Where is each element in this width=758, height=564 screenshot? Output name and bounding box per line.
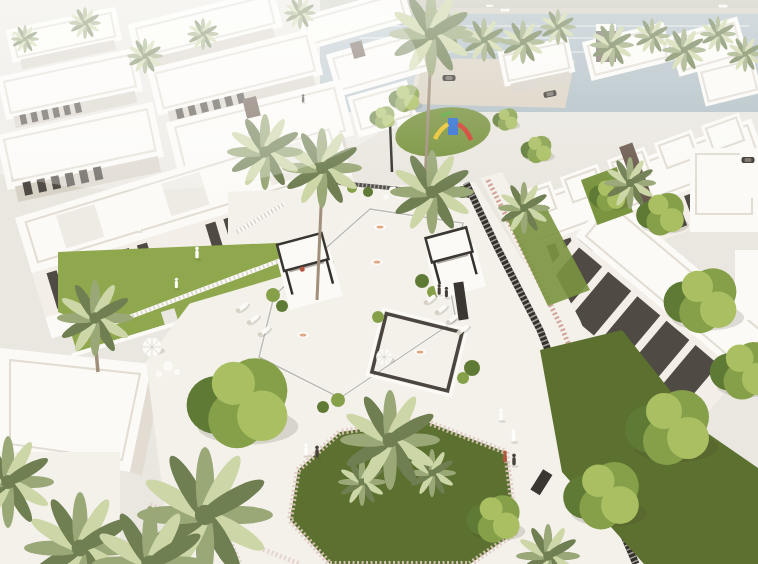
- swimmer: [414, 349, 426, 355]
- cafe-table: [163, 361, 173, 371]
- scene-canvas: [0, 0, 758, 564]
- swimmer: [297, 332, 309, 338]
- aerial-render-image: [0, 0, 758, 564]
- swimmer: [374, 224, 386, 230]
- swimmer: [371, 259, 383, 265]
